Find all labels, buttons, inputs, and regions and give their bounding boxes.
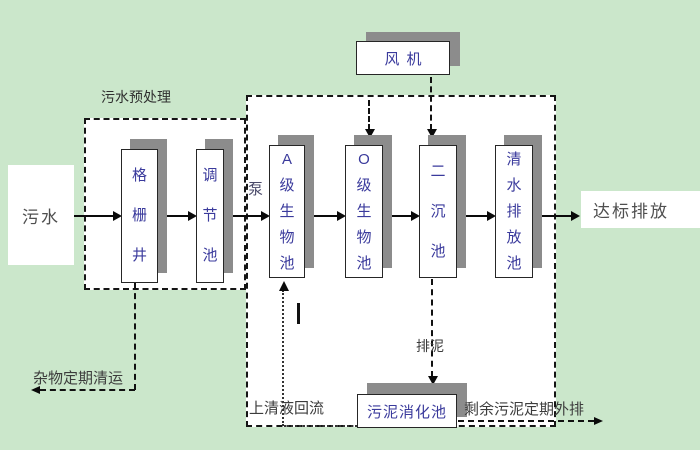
grid-well-label: 格栅井 xyxy=(131,156,148,276)
excess-sludge-arrow xyxy=(458,420,594,422)
flow-arrow-gridwell-to-regulating xyxy=(158,215,188,217)
effluent-label: 达标排放 xyxy=(593,197,669,222)
sludge-digestion-label: 污泥消化池 xyxy=(367,401,447,422)
a-bio-tank-node: A级生物池 xyxy=(269,145,305,278)
influent-label: 污水 xyxy=(22,203,60,228)
flow-arrow-o-to-clarifier xyxy=(383,215,411,217)
regulating-tank-label: 调节池 xyxy=(202,156,219,276)
debris-arrow xyxy=(40,389,135,391)
blower-air-arrow-clarifier xyxy=(430,77,432,130)
influent-box: 污水 xyxy=(8,165,74,265)
clear-water-tank-node: 清水排放池 xyxy=(495,145,533,278)
flow-arrow-clarifier-to-clearwater xyxy=(457,215,487,217)
flow-arrow-regulating-to-a-tank xyxy=(224,215,261,217)
o-bio-tank-label: O级生物池 xyxy=(356,147,373,277)
blower-air-arrow-o-tank xyxy=(368,100,370,130)
secondary-clarifier-node: 二沉池 xyxy=(419,145,457,278)
debris-removal-label: 杂物定期清运 xyxy=(33,367,123,388)
pump-label: 泵 xyxy=(248,178,263,199)
a-bio-tank-label: A级生物池 xyxy=(279,147,296,277)
sludge-discharge-arrow xyxy=(431,279,433,377)
sludge-discharge-label: 排泥 xyxy=(416,336,444,356)
effluent-box: 达标排放 xyxy=(581,191,700,228)
debris-line-vertical xyxy=(134,283,136,390)
excess-sludge-label: 剩余污泥定期外排 xyxy=(464,398,584,419)
secondary-clarifier-label: 二沉池 xyxy=(430,152,447,272)
process-flow-diagram: 污水预处理 污水 风机 格栅井 调节池 A级生物池 O级生物池 二沉池 清水排放… xyxy=(0,0,700,450)
supernatant-return-label: 上清液回流 xyxy=(249,397,324,418)
o-bio-tank-node: O级生物池 xyxy=(345,145,383,278)
supernatant-line-horizontal xyxy=(284,425,357,427)
grid-well-node: 格栅井 xyxy=(121,149,158,283)
flow-arrow-clearwater-to-effluent xyxy=(533,215,571,217)
tick-mark xyxy=(297,303,300,324)
flow-arrow-influent-to-gridwell xyxy=(74,215,113,217)
clear-water-tank-label: 清水排放池 xyxy=(506,147,523,277)
blower-label: 风机 xyxy=(377,48,428,69)
flow-arrow-a-to-o-tank xyxy=(305,215,337,217)
sludge-digestion-node: 污泥消化池 xyxy=(357,394,457,428)
regulating-tank-node: 调节池 xyxy=(196,149,224,283)
blower-node: 风机 xyxy=(356,41,450,75)
pretreatment-label: 污水预处理 xyxy=(101,87,171,107)
